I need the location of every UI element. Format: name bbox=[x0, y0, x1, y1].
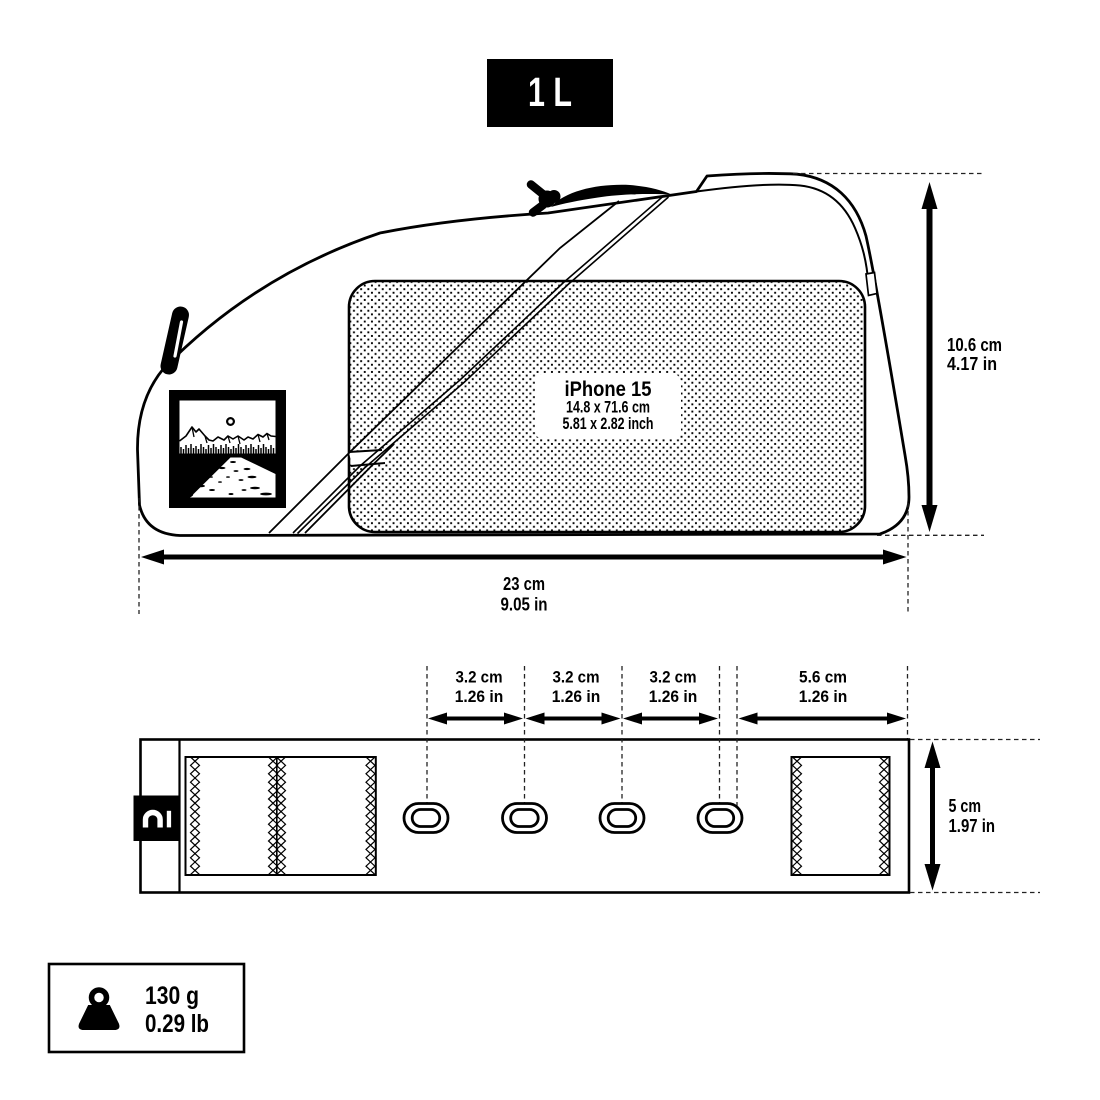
svg-text:14.8 x 71.6 cm: 14.8 x 71.6 cm bbox=[566, 399, 650, 417]
svg-text:1.26 in: 1.26 in bbox=[799, 687, 848, 706]
svg-text:1 L: 1 L bbox=[528, 69, 572, 115]
svg-text:3.2 cm: 3.2 cm bbox=[553, 668, 600, 687]
svg-text:5.6 cm: 5.6 cm bbox=[799, 668, 847, 687]
svg-text:1.26 in: 1.26 in bbox=[455, 687, 504, 706]
svg-text:5 cm: 5 cm bbox=[949, 796, 982, 816]
svg-text:10.6 cm: 10.6 cm bbox=[947, 335, 1002, 355]
svg-text:5.81 x 2.82 inch: 5.81 x 2.82 inch bbox=[563, 415, 654, 433]
svg-text:3.2 cm: 3.2 cm bbox=[650, 668, 697, 687]
svg-text:3.2 cm: 3.2 cm bbox=[456, 668, 503, 687]
svg-text:4.17 in: 4.17 in bbox=[947, 354, 997, 374]
svg-text:0.29 lb: 0.29 lb bbox=[145, 1010, 209, 1038]
svg-text:23 cm: 23 cm bbox=[503, 573, 545, 594]
svg-text:130 g: 130 g bbox=[145, 982, 199, 1010]
svg-text:1.26 in: 1.26 in bbox=[649, 687, 698, 706]
svg-text:1.26 in: 1.26 in bbox=[552, 687, 601, 706]
svg-text:1.97 in: 1.97 in bbox=[949, 816, 996, 836]
svg-text:9.05 in: 9.05 in bbox=[501, 594, 548, 615]
